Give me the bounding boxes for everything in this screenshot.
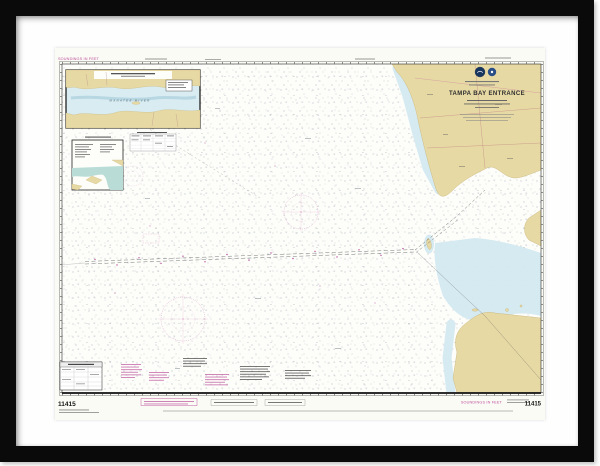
chart-number-left: 11415 xyxy=(58,401,76,408)
inset-secondary xyxy=(72,140,123,190)
inset-manatee-river: MANATEE RIVER xyxy=(66,70,200,128)
soundings-note-bottom: SOUNDINGS IN FEET xyxy=(461,401,503,405)
chart-title: TAMPA BAY ENTRANCE xyxy=(449,91,525,97)
inset2-caption xyxy=(85,137,111,138)
chart-paper: TAMPA BAY ENTRANCE xyxy=(55,48,545,420)
tide-table xyxy=(130,134,176,151)
tide-table-caption xyxy=(137,132,167,133)
nautical-chart: TAMPA BAY ENTRANCE xyxy=(55,48,545,420)
inset-title: MANATEE RIVER xyxy=(109,99,150,103)
notes-table xyxy=(60,362,102,390)
picture-frame: TAMPA BAY ENTRANCE xyxy=(0,0,594,462)
soundings-note-top: SOUNDINGS IN FEET xyxy=(58,57,100,61)
photo-background: TAMPA BAY ENTRANCE xyxy=(0,0,600,466)
land-bradenton xyxy=(453,312,541,393)
chart-number-right: 11415 xyxy=(525,402,542,408)
frame-mat: TAMPA BAY ENTRANCE xyxy=(16,16,578,446)
fine-print-line xyxy=(163,411,513,412)
